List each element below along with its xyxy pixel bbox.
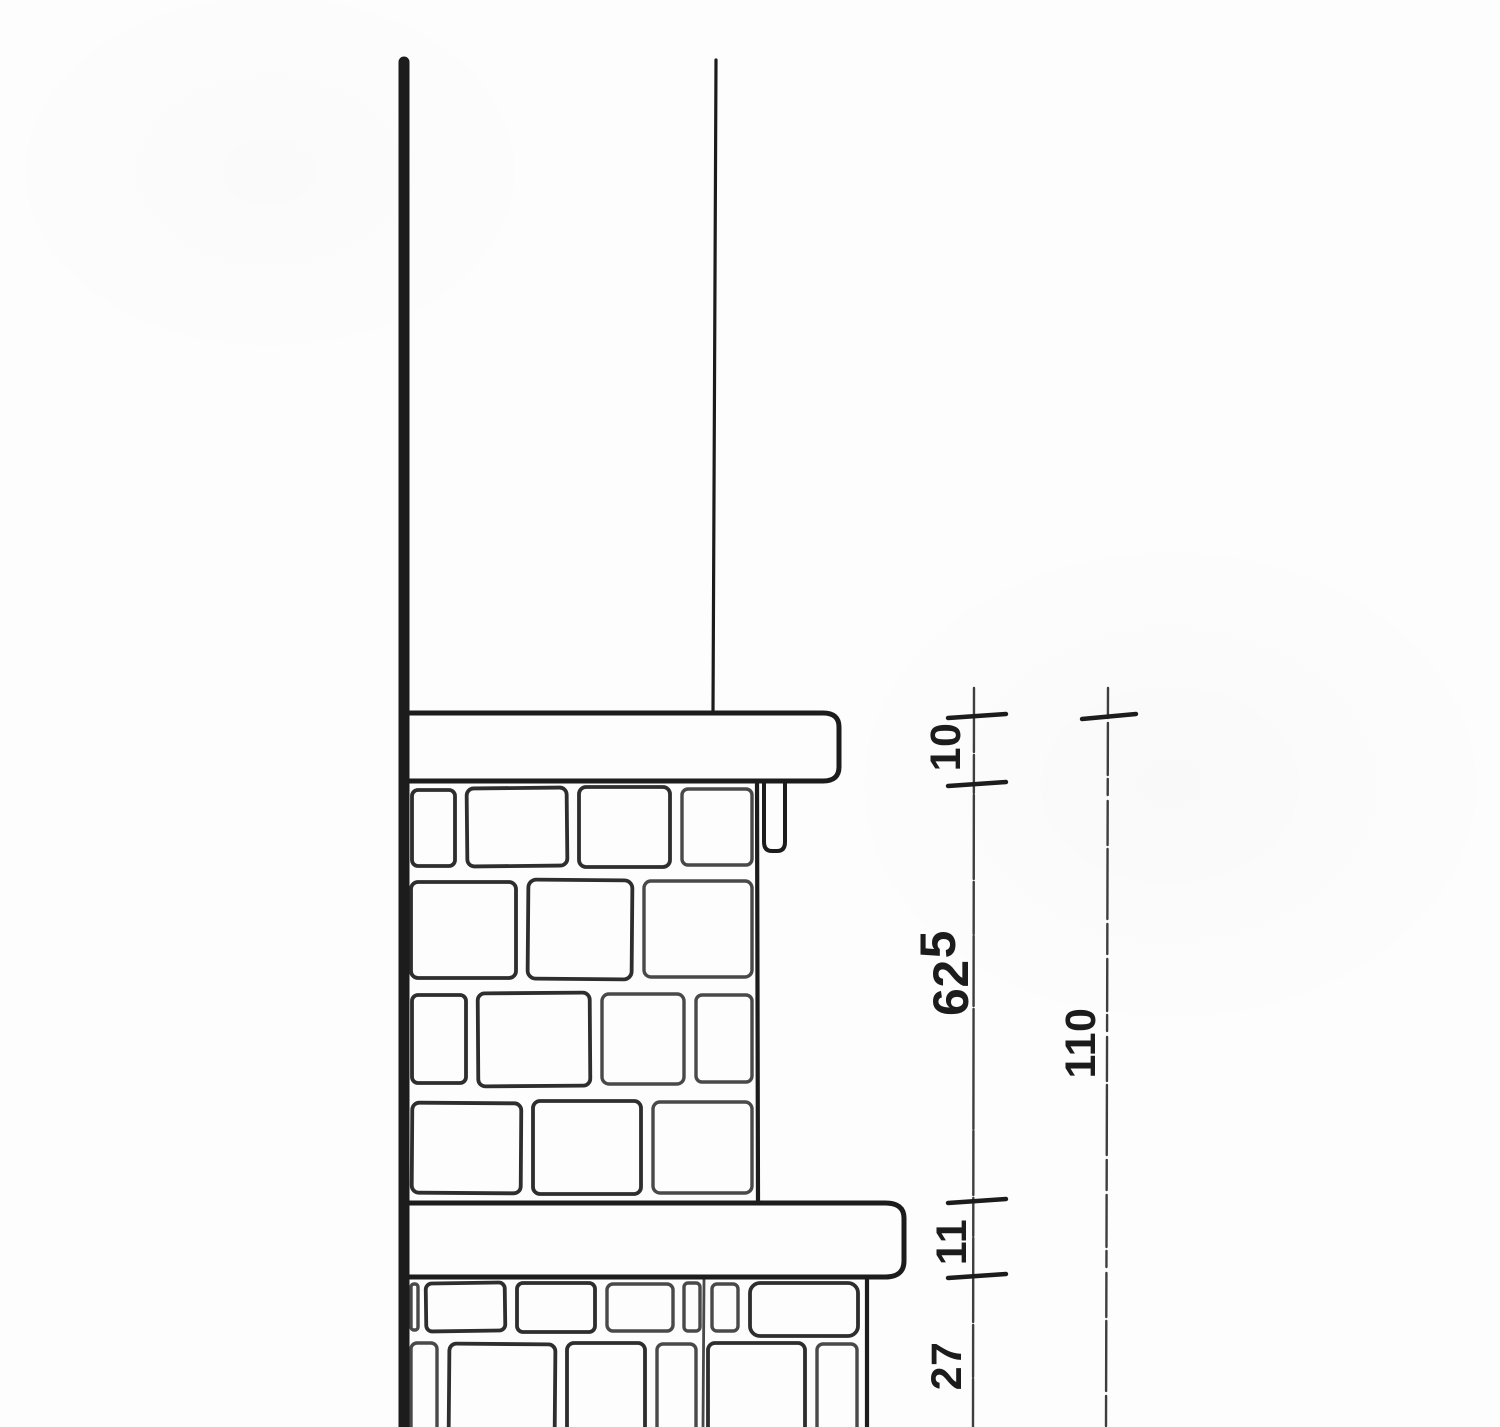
dim-label-10: 10 — [922, 723, 970, 772]
masonry-stone — [528, 880, 633, 980]
dimension-tick — [948, 1274, 1006, 1278]
masonry-stone — [653, 1102, 752, 1193]
masonry-stone — [657, 1344, 696, 1427]
masonry-stones-lower — [411, 1282, 858, 1427]
masonry-stone — [412, 995, 466, 1083]
masonry-stone — [467, 787, 568, 866]
masonry-stone — [579, 787, 670, 867]
dim-label-62-5: 625 — [910, 930, 979, 1016]
lower-coping-stone — [404, 1203, 904, 1277]
dimension-tick — [948, 1199, 1006, 1203]
dim-label-62-main: 62 — [923, 959, 979, 1016]
masonry-stone — [750, 1283, 858, 1336]
masonry-stone — [412, 790, 455, 866]
dimension-line-right-group: 110 — [1057, 688, 1136, 1427]
masonry-stone — [411, 1343, 437, 1427]
masonry-stone — [708, 1343, 805, 1427]
masonry-stone — [478, 993, 591, 1087]
lower-masonry-joint-line — [703, 1280, 704, 1427]
masonry-stone — [426, 1282, 506, 1331]
drip-notch — [764, 781, 785, 851]
dimension-tick — [948, 714, 1006, 718]
dimension-tick — [1082, 714, 1136, 719]
upper-coping-stone — [404, 713, 839, 781]
scanned-drawing-page: 10 625 11 27 110 — [0, 0, 1500, 1427]
masonry-stone — [517, 1283, 595, 1332]
dimension-line-left — [973, 688, 974, 1427]
masonry-stone — [644, 881, 752, 977]
dim-label-27: 27 — [923, 1342, 971, 1391]
upper-masonry-face-line — [757, 783, 758, 1201]
masonry-stone — [712, 1284, 738, 1331]
masonry-stone — [412, 1103, 522, 1194]
upper-wall-face-line — [713, 60, 716, 712]
masonry-stone — [411, 882, 516, 978]
wall-section-drawing: 10 625 11 27 110 — [0, 0, 1500, 1427]
wall-face-lines — [404, 60, 716, 1427]
dim-label-62-sup: 5 — [910, 930, 966, 958]
masonry-stone — [682, 789, 752, 865]
masonry-stone — [533, 1101, 641, 1194]
masonry-stone — [607, 1284, 673, 1331]
upper-masonry-band — [411, 783, 758, 1201]
lower-masonry-band — [411, 1279, 867, 1427]
dim-label-11: 11 — [928, 1219, 976, 1265]
masonry-stone — [567, 1343, 645, 1427]
masonry-stone — [602, 994, 684, 1084]
dimension-tick — [948, 782, 1006, 786]
masonry-stone — [696, 995, 752, 1082]
dim-label-110: 110 — [1057, 1008, 1105, 1079]
masonry-stone — [449, 1344, 556, 1427]
masonry-stones-upper — [411, 787, 752, 1194]
masonry-stone — [684, 1283, 700, 1331]
masonry-stone — [817, 1344, 857, 1427]
masonry-stone — [411, 1284, 418, 1330]
dimension-line-right — [1106, 688, 1108, 1427]
dimension-chain-left: 10 625 11 27 — [910, 688, 1006, 1427]
